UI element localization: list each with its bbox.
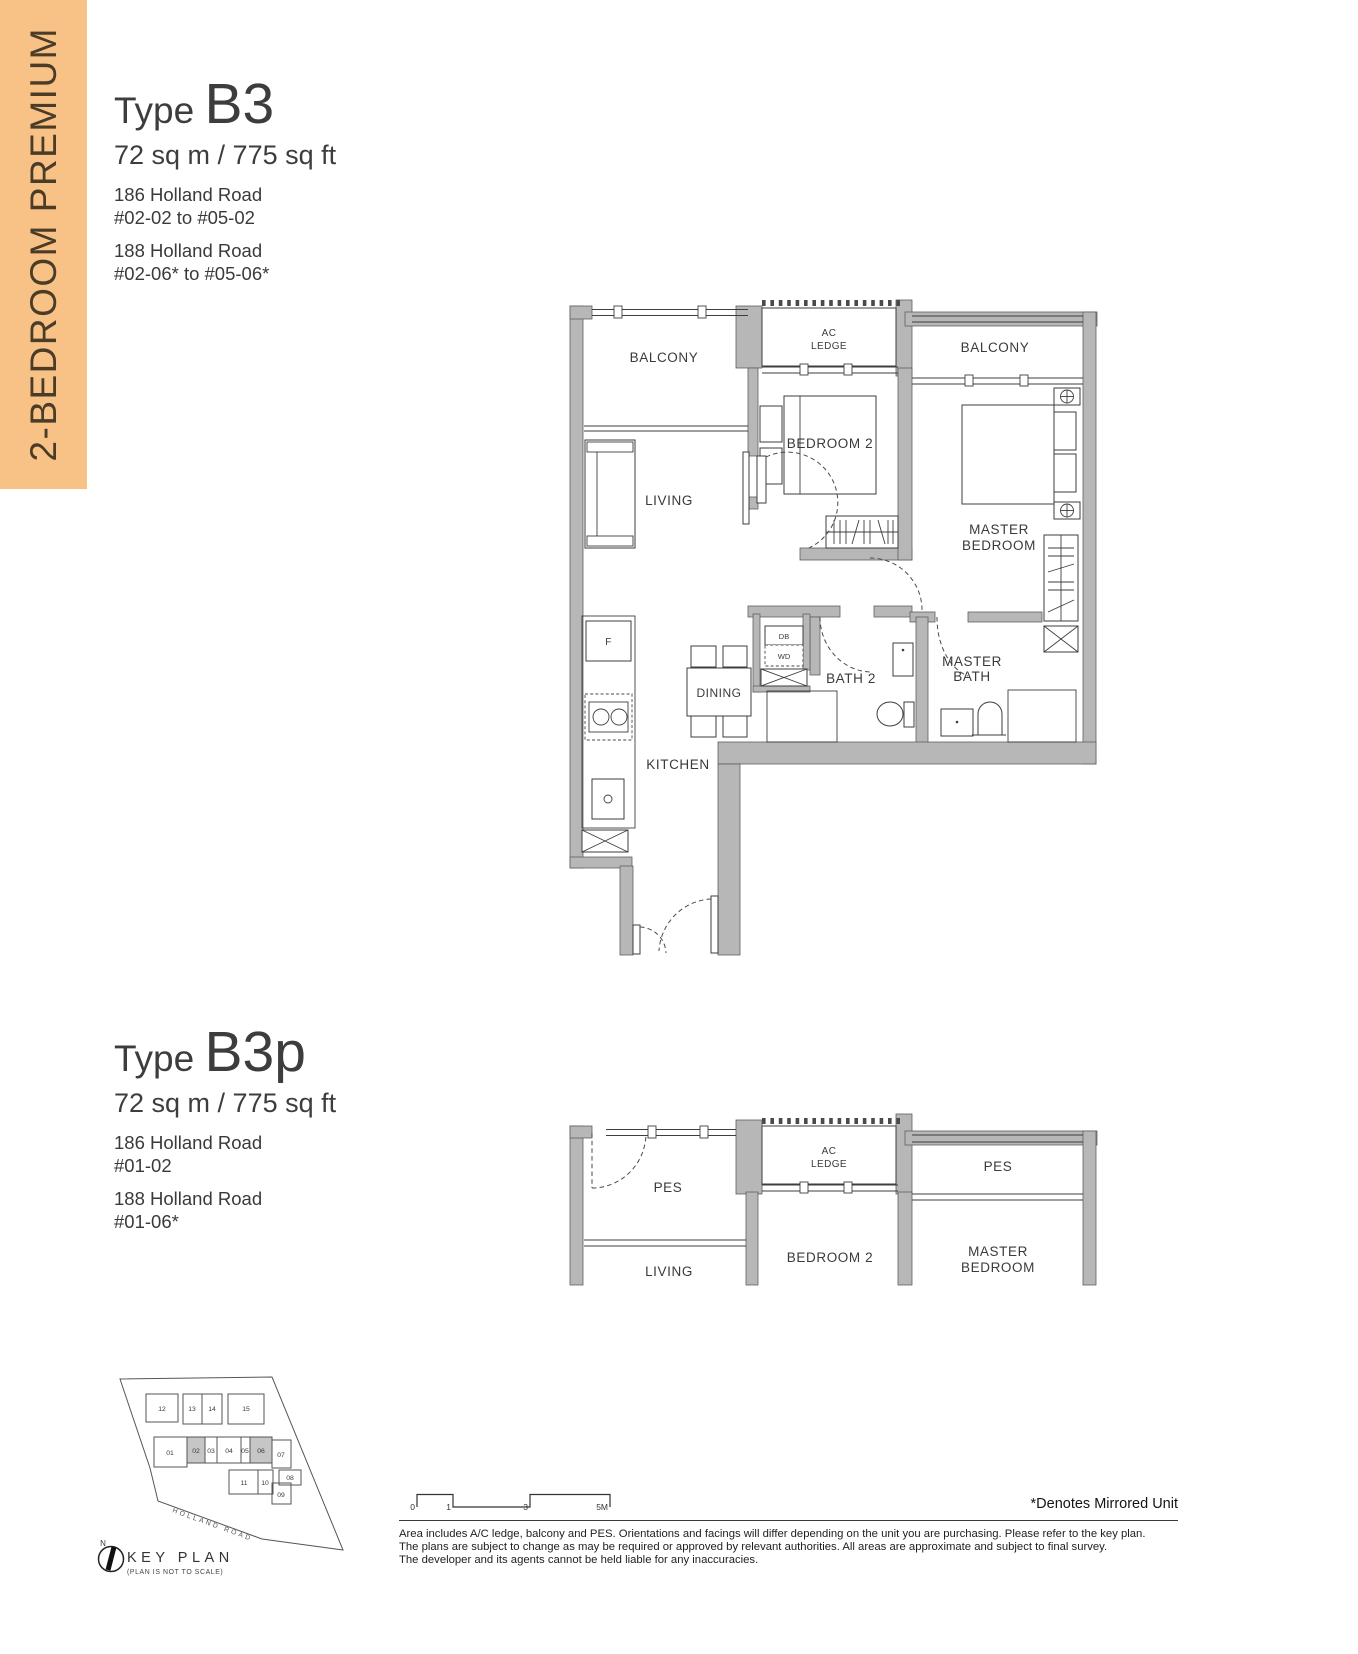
svg-text:01: 01: [166, 1450, 174, 1457]
unit-b3-header: Type B3 72 sq m / 775 sq ft 186 Holland …: [114, 76, 336, 285]
b3-ac-ledge-label-2: LEDGE: [811, 341, 847, 352]
footer-divider: [399, 1520, 1178, 1521]
category-banner: 2-BEDROOM PREMIUM: [0, 0, 87, 489]
b3-tv-console: [743, 452, 749, 524]
unit-b3-type-label: Type: [114, 90, 194, 131]
b3-masterbath-label-1: MASTER: [942, 654, 1002, 669]
b3-kitchen-fixtures: F: [582, 616, 635, 852]
b3-bedroom2-furniture: [760, 396, 898, 548]
svg-text:08: 08: [286, 1475, 294, 1482]
b3-fridge-label: F: [605, 637, 612, 648]
b3p-ac-ledge-label-1: AC: [822, 1146, 837, 1157]
unit-b3p-title: Type B3p: [114, 1024, 336, 1081]
b3-balcony-right-label: BALCONY: [961, 340, 1030, 355]
unit-b3p-address-1: 186 Holland Road #01-02: [114, 1131, 336, 1177]
svg-text:11: 11: [240, 1480, 247, 1487]
b3-bedroom2-label: BEDROOM 2: [787, 436, 873, 451]
scale-tick-0: 0: [410, 1502, 415, 1512]
north-arrow-icon: N: [99, 1539, 124, 1572]
b3-sink: [585, 694, 632, 740]
b3-db-label: DB: [779, 632, 789, 641]
page: { "banner": {"label": "2-BEDROOM PREMIUM…: [0, 0, 1358, 1654]
b3p-living-label: LIVING: [645, 1264, 693, 1279]
b3-wd-label: WD: [778, 652, 791, 661]
key-plan: 12 13 14 15 01 02 03 04 05 06 07 11 10 0…: [78, 1368, 368, 1593]
b3-ac-ledge-label-1: AC: [822, 328, 837, 339]
category-banner-label: 2-BEDROOM PREMIUM: [23, 27, 65, 462]
svg-text:06: 06: [257, 1448, 265, 1455]
b3-living-label: LIVING: [645, 493, 693, 508]
scale-tick-3: 3: [523, 1502, 528, 1512]
floorplan-b3p: AC LEDGE PES PES LIVING BEDROOM 2 MASTER…: [555, 1112, 1110, 1290]
b3-stove: [592, 779, 624, 819]
road-label: HOLLAND ROAD: [171, 1507, 253, 1543]
b3-bath2-label: BATH 2: [826, 671, 876, 686]
b3-balcony-left-label: BALCONY: [630, 350, 699, 365]
svg-text:14: 14: [208, 1406, 216, 1413]
unit-b3-type-code: B3: [205, 72, 275, 136]
unit-b3p-type-label: Type: [114, 1038, 194, 1079]
scale-tick-1: 1: [446, 1502, 451, 1512]
unit-b3p-type-code: B3p: [205, 1020, 306, 1084]
unit-b3-area: 72 sq m / 775 sq ft: [114, 142, 336, 169]
b3p-ac-ledge: AC LEDGE: [762, 1121, 902, 1184]
svg-text:05: 05: [241, 1448, 249, 1455]
b3-master-toilet: [978, 702, 1002, 735]
unit-b3-title: Type B3: [114, 76, 336, 133]
b3-ac-ledge: AC LEDGE: [762, 303, 902, 366]
b3-masterbath-fixtures: [941, 690, 1076, 742]
svg-text:10: 10: [261, 1480, 269, 1487]
svg-text:13: 13: [188, 1406, 196, 1413]
b3-toilet2-tank: [904, 702, 914, 727]
unit-b3-address-2: 188 Holland Road #02-06* to #05-06*: [114, 239, 336, 285]
b3p-ac-ledge-label-2: LEDGE: [811, 1159, 847, 1170]
b3-kitchen-ac-box: [582, 830, 628, 852]
unit-b3-address-1: 186 Holland Road #02-02 to #05-02: [114, 183, 336, 229]
svg-text:02: 02: [192, 1448, 200, 1455]
keyplan-subtitle: (PLAN IS NOT TO SCALE): [127, 1569, 223, 1576]
svg-text:04: 04: [225, 1448, 233, 1455]
b3p-master-label-2: BEDROOM: [961, 1260, 1035, 1275]
b3-nightstand-lamp-1: [1054, 388, 1080, 405]
svg-text:07: 07: [277, 1452, 285, 1459]
mirrored-unit-note: *Denotes Mirrored Unit: [880, 1496, 1178, 1512]
b3-dining-label: DINING: [697, 686, 742, 700]
b3-master-label-1: MASTER: [969, 522, 1029, 537]
b3-bedroom2-wardrobe: [826, 516, 898, 548]
b3-master-ac-box: [1044, 626, 1078, 652]
floorplan-b3: AC LEDGE: [555, 290, 1110, 965]
svg-text:03: 03: [207, 1448, 215, 1455]
b3-toilet2-bowl: [877, 702, 903, 726]
svg-text:12: 12: [158, 1406, 166, 1413]
scale-bar: 0 1 3 5M: [395, 1485, 625, 1515]
b3-db-wd-closet: DB WD: [761, 626, 807, 686]
north-label: N: [100, 1539, 106, 1548]
b3p-master-label-1: MASTER: [968, 1244, 1028, 1259]
b3-masterbath-label-2: BATH: [953, 669, 990, 684]
disclaimer-line-3: The developer and its agents cannot be h…: [399, 1554, 1183, 1567]
keyplan-title: KEY PLAN: [127, 1550, 234, 1566]
disclaimer-line-1: Area includes A/C ledge, balcony and PES…: [399, 1528, 1183, 1541]
svg-text:09: 09: [277, 1492, 285, 1499]
b3-sofa: [585, 440, 635, 548]
b3-nightstand-lamp-2: [1054, 502, 1080, 519]
b3-kitchen-label: KITCHEN: [646, 757, 709, 772]
disclaimer: Area includes A/C ledge, balcony and PES…: [399, 1528, 1183, 1567]
svg-text:15: 15: [242, 1406, 250, 1413]
scale-tick-5m: 5M: [596, 1502, 608, 1512]
b3p-pes-left-label: PES: [654, 1180, 683, 1195]
unit-b3p-address-2: 188 Holland Road #01-06*: [114, 1187, 336, 1233]
b3-master-wardrobe: [1044, 535, 1078, 621]
b3p-pes-right-label: PES: [984, 1159, 1013, 1174]
b3p-pes-door: [592, 1133, 646, 1188]
unit-b3p-header: Type B3p 72 sq m / 775 sq ft 186 Holland…: [114, 1024, 336, 1233]
unit-b3p-area: 72 sq m / 775 sq ft: [114, 1090, 336, 1117]
b3-master-label-2: BEDROOM: [962, 538, 1036, 553]
keyplan-unit-numbers: 12 13 14 15 01 02 03 04 05 06 07 11 10 0…: [158, 1406, 294, 1499]
keyplan-buildings: [146, 1394, 301, 1504]
b3p-bedroom2-label: BEDROOM 2: [787, 1250, 873, 1265]
disclaimer-line-2: The plans are subject to change as may b…: [399, 1541, 1183, 1554]
